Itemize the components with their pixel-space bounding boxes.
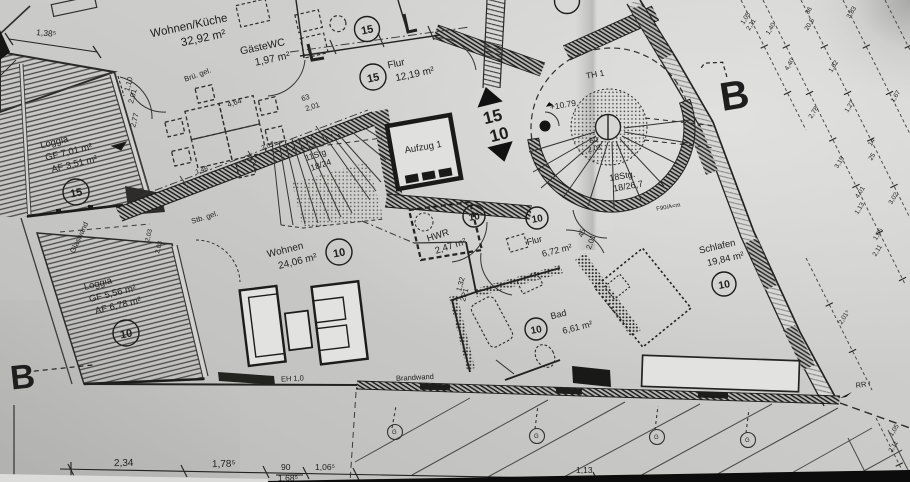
svg-text:15: 15 — [360, 23, 374, 37]
svg-text:90: 90 — [281, 462, 291, 472]
svg-text:G: G — [392, 430, 397, 436]
svg-text:2,34: 2,34 — [114, 458, 134, 469]
svg-text:1,78⁵: 1,78⁵ — [212, 459, 236, 470]
svg-text:B: B — [8, 357, 36, 397]
svg-text:EH 1,0: EH 1,0 — [281, 373, 304, 383]
svg-text:1,06⁵: 1,06⁵ — [315, 462, 335, 472]
svg-text:10: 10 — [119, 328, 133, 342]
svg-text:G: G — [534, 434, 539, 440]
svg-text:15: 15 — [69, 186, 83, 200]
svg-text:10: 10 — [717, 278, 731, 292]
svg-text:10: 10 — [332, 247, 346, 261]
svg-text:15: 15 — [366, 71, 380, 85]
svg-text:1,13: 1,13 — [576, 465, 593, 475]
svg-text:G: G — [654, 435, 659, 441]
svg-text:G: G — [745, 438, 750, 444]
svg-text:1,38⁵: 1,38⁵ — [36, 27, 57, 39]
